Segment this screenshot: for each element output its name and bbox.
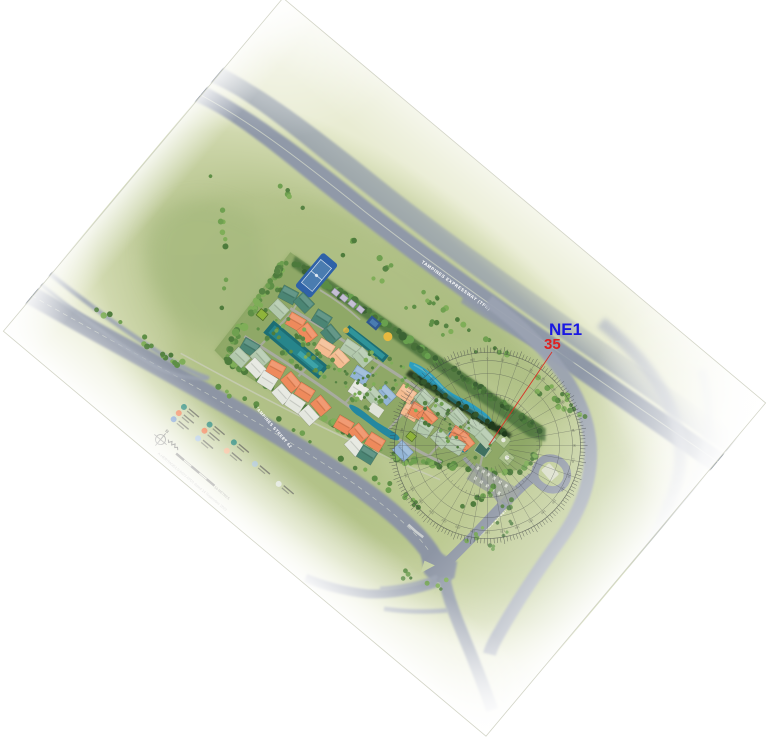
svg-text:270: 270 <box>399 443 403 448</box>
svg-text:35: 35 <box>544 336 561 353</box>
svg-text:90: 90 <box>573 444 577 448</box>
svg-text:180: 180 <box>485 531 490 535</box>
